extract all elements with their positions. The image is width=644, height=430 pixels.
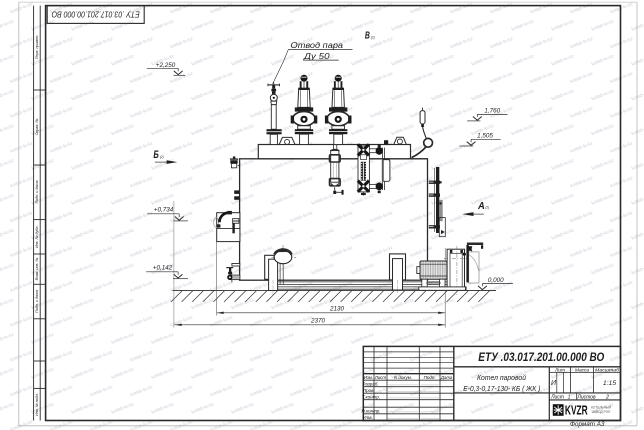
svg-text:Отвод пара: Отвод пара <box>291 41 344 50</box>
svg-text:ЕТУ .03.017.201.00.000 ВО: ЕТУ .03.017.201.00.000 ВО <box>52 10 140 19</box>
svg-text:1,505: 1,505 <box>477 133 493 140</box>
svg-text:А: А <box>477 201 485 212</box>
svg-text:2130: 2130 <box>329 306 345 313</box>
svg-text:2: 2 <box>605 395 609 401</box>
svg-text:Масса: Масса <box>575 368 590 374</box>
svg-text:Б: Б <box>153 149 158 161</box>
svg-text:Разраб.: Разраб. <box>362 382 378 387</box>
svg-text:Подп.: Подп. <box>424 375 436 380</box>
svg-text:Утв.: Утв. <box>363 415 373 420</box>
svg-text:Взам. инв. №: Взам. инв. № <box>35 258 39 281</box>
svg-text:N докум.: N докум. <box>394 375 412 380</box>
svg-text:Н.контр.: Н.контр. <box>361 409 380 414</box>
svg-text:В: В <box>365 31 370 42</box>
svg-text:(2): (2) <box>160 155 164 159</box>
svg-text:Пров.: Пров. <box>363 388 375 393</box>
svg-text:КОТЕЛЬНЫЙ: КОТЕЛЬНЫЙ <box>591 406 612 410</box>
svg-text:1: 1 <box>568 395 571 401</box>
svg-text:ЗАВОД РЭП: ЗАВОД РЭП <box>592 410 611 414</box>
svg-text:+0,142: +0,142 <box>153 264 173 271</box>
svg-text:KVZR: KVZR <box>565 403 588 418</box>
svg-text:ЕТУ .03.017.201.00.000 ВО: ЕТУ .03.017.201.00.000 ВО <box>478 350 604 364</box>
svg-text:Котел паровой: Котел паровой <box>477 373 527 382</box>
svg-text:1,760: 1,760 <box>484 108 500 115</box>
svg-text:Подп. и дата: Подп. и дата <box>35 290 39 313</box>
svg-text:+2,250: +2,250 <box>156 62 176 69</box>
svg-text:Изм.: Изм. <box>364 375 373 380</box>
svg-text:Т.контр.: Т.контр. <box>362 395 380 400</box>
svg-text:Инв. № подл.: Инв. № подл. <box>35 393 39 416</box>
svg-text:Справ. №: Справ. № <box>35 119 39 136</box>
svg-text:Инв. № дубл.: Инв. № дубл. <box>35 225 39 248</box>
svg-text:Формат А3: Формат А3 <box>570 421 605 428</box>
svg-text:0,000: 0,000 <box>488 277 504 284</box>
svg-text:Ду 50: Ду 50 <box>303 52 331 61</box>
svg-text:Е-0,3-0,17-130- КБ ( ЖК ): Е-0,3-0,17-130- КБ ( ЖК ) <box>463 386 540 393</box>
svg-text:Подп. и дата: Подп. и дата <box>35 180 39 203</box>
svg-text:+0,734: +0,734 <box>154 207 174 214</box>
svg-text:Листов: Листов <box>576 395 596 401</box>
svg-text:Лист: Лист <box>374 375 387 380</box>
svg-text:2370: 2370 <box>310 318 326 325</box>
svg-text:Масштаб: Масштаб <box>595 368 619 374</box>
svg-text:Дата: Дата <box>440 375 453 380</box>
svg-text:1:15: 1:15 <box>603 380 616 387</box>
svg-text:(2): (2) <box>371 35 375 39</box>
svg-text:Лист: Лист <box>550 395 564 401</box>
svg-text:(2): (2) <box>485 206 489 210</box>
svg-text:Перв. примен.: Перв. примен. <box>35 35 39 60</box>
